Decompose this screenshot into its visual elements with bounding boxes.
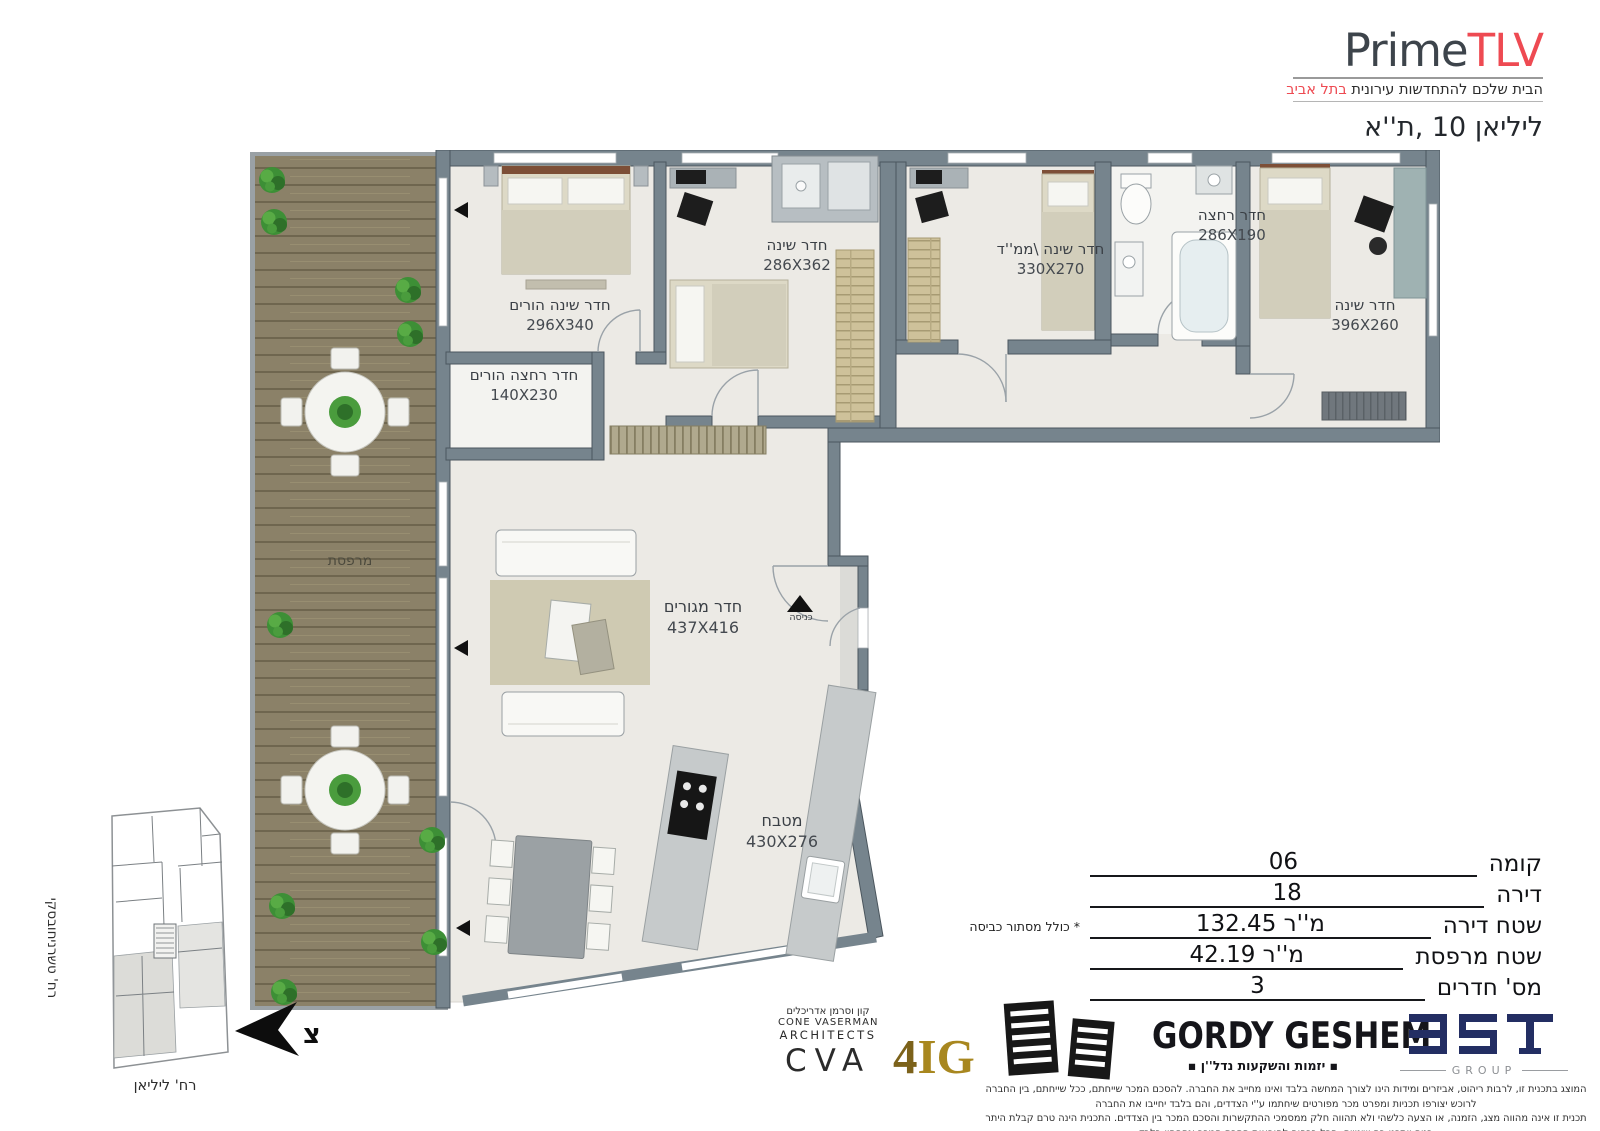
balcony-deck xyxy=(250,152,448,1010)
cva-line1: CONE VASERMAN xyxy=(778,1017,878,1028)
room-name: חדר שינה xyxy=(1295,296,1435,316)
label-bathroom: חדר רחצה 286X190 xyxy=(1162,206,1302,246)
4ig-logo: 4IG xyxy=(893,1032,975,1081)
cva-line2: ARCHITECTS xyxy=(778,1028,878,1042)
spec-row-rooms-count: מס' חדרים 3 xyxy=(1090,970,1542,1001)
room-dims: 296X340 xyxy=(480,316,640,336)
laundry-note: * כולל מסתור כביסה xyxy=(865,920,1080,934)
bst-letters xyxy=(1409,1014,1559,1056)
label-master-bath: חדר רחצה הורים 140X230 xyxy=(448,366,600,406)
label-living-room: חדר מגורים 437X416 xyxy=(628,596,778,638)
brand-tagline: הבית שלכם להתחדשות עירונית בתל אביב xyxy=(1293,82,1543,98)
street-label-bottom: רח' ליליאן xyxy=(92,1078,238,1094)
room-name: מטבח xyxy=(712,810,852,831)
dash-left xyxy=(1400,1070,1446,1072)
cva-acronym: CVA xyxy=(778,1043,878,1079)
room-dims: 437X416 xyxy=(628,617,778,638)
room-name: חדר רחצה xyxy=(1162,206,1302,226)
street-label-side: רח' טשרניחובסקי xyxy=(40,862,60,1034)
prime-tlv-logo: PrimeTLV xyxy=(1293,28,1543,73)
spec-row-floor: קומה 06 xyxy=(1090,846,1542,877)
spec-value: 18 xyxy=(1273,880,1302,906)
room-name: חדר שינה הורים xyxy=(480,296,640,316)
brand-divider xyxy=(1293,77,1543,79)
spec-value: 06 xyxy=(1269,849,1298,875)
cva-architects-logo: קון וסרמן אדריכלים CONE VASERMAN ARCHITE… xyxy=(778,1006,878,1079)
gordy-geshem-logo: GORDY GESHEM ▪ יזמות והשקעות נדל''ן ▪ xyxy=(1152,1018,1374,1073)
room-dims: 140X230 xyxy=(448,386,600,406)
spec-value: 42.19 מ''ר xyxy=(1190,942,1304,968)
label-mamad-bedroom: חדר שינה \ממ''ד 330X270 xyxy=(968,240,1133,280)
dash-right xyxy=(1522,1070,1568,1072)
spec-value: 3 xyxy=(1250,973,1265,999)
disclaimer-line-2: תכנית זו אינה מהווה מצג, הזמנה, או הצעה … xyxy=(977,1112,1595,1131)
room-name: חדר מגורים xyxy=(628,596,778,617)
brand-block: PrimeTLV הבית שלכם להתחדשות עירונית בתל … xyxy=(1293,28,1543,143)
tagline-accent: בתל אביב xyxy=(1286,82,1346,98)
spec-row-balcony-area: שטח מרפסת 42.19 מ''ר xyxy=(1090,939,1542,970)
4ig-buildings-icon xyxy=(998,996,1122,1082)
north-letter: צ xyxy=(303,1019,321,1050)
room-name: חדר רחצה הורים xyxy=(448,366,600,386)
room-dims: 430X276 xyxy=(712,831,852,852)
tagline-text: הבית שלכם להתחדשות עירונית xyxy=(1351,82,1543,98)
label-bedroom-2: חדר שינה 286X362 xyxy=(722,236,872,276)
spec-label: מס' חדרים xyxy=(1437,976,1542,1001)
spec-label: שטח דירה xyxy=(1443,914,1542,939)
room-dims: 330X270 xyxy=(968,260,1133,280)
apartment-specs-table: קומה 06 דירה 18 שטח דירה 132.45 מ''ר * כ… xyxy=(1090,846,1542,1001)
spec-row-apartment: דירה 18 xyxy=(1090,877,1542,908)
room-dims: 396X260 xyxy=(1295,316,1435,336)
north-arrow: צ xyxy=(233,996,329,1064)
label-entrance: כניסה xyxy=(768,612,834,625)
gordy-title: GORDY GESHEM xyxy=(1152,1015,1374,1057)
spec-label: קומה xyxy=(1489,852,1542,877)
room-dims: 286X362 xyxy=(722,256,872,276)
4ig-ig: IG xyxy=(918,1029,975,1084)
logo-prime: Prime xyxy=(1344,24,1468,77)
bst-group-logo: GROUP xyxy=(1400,1014,1568,1077)
4ig-four: 4 xyxy=(893,1029,918,1084)
spec-value: 132.45 מ''ר xyxy=(1196,911,1325,937)
spec-label: דירה xyxy=(1496,883,1542,908)
logo-tlv: TLV xyxy=(1468,24,1543,77)
label-bedroom-3: חדר שינה 396X260 xyxy=(1295,296,1435,336)
room-dims: 286X190 xyxy=(1162,226,1302,246)
room-name: חדר שינה \ממ''ד xyxy=(968,240,1133,260)
label-master-bedroom: חדר שינה הורים 296X340 xyxy=(480,296,640,336)
bst-group-line: GROUP xyxy=(1400,1064,1568,1077)
cva-hebrew: קון וסרמן אדריכלים xyxy=(778,1006,878,1017)
bst-subtitle: GROUP xyxy=(1452,1064,1517,1077)
room-name: חדר שינה xyxy=(722,236,872,256)
gordy-subtitle: ▪ יזמות והשקעות נדל''ן ▪ xyxy=(1152,1058,1374,1073)
project-address: ליליאן 10 ,ת''א xyxy=(1293,112,1543,143)
spec-label: שטח מרפסת xyxy=(1415,945,1542,970)
page: PrimeTLV הבית שלכם להתחדשות עירונית בתל … xyxy=(0,0,1600,1131)
legal-disclaimer: המוצג בתכנית זו, לרבות ריהוט, אביזרים ומ… xyxy=(977,1083,1595,1131)
disclaimer-line-1: המוצג בתכנית זו, לרבות ריהוט, אביזרים ומ… xyxy=(977,1083,1595,1112)
label-balcony: מרפסת xyxy=(300,553,400,569)
site-plan xyxy=(82,806,240,1076)
spec-row-apartment-area: שטח דירה 132.45 מ''ר * כולל מסתור כביסה xyxy=(1090,908,1542,939)
brand-divider-2 xyxy=(1293,101,1543,102)
label-kitchen: מטבח 430X276 xyxy=(712,810,852,852)
